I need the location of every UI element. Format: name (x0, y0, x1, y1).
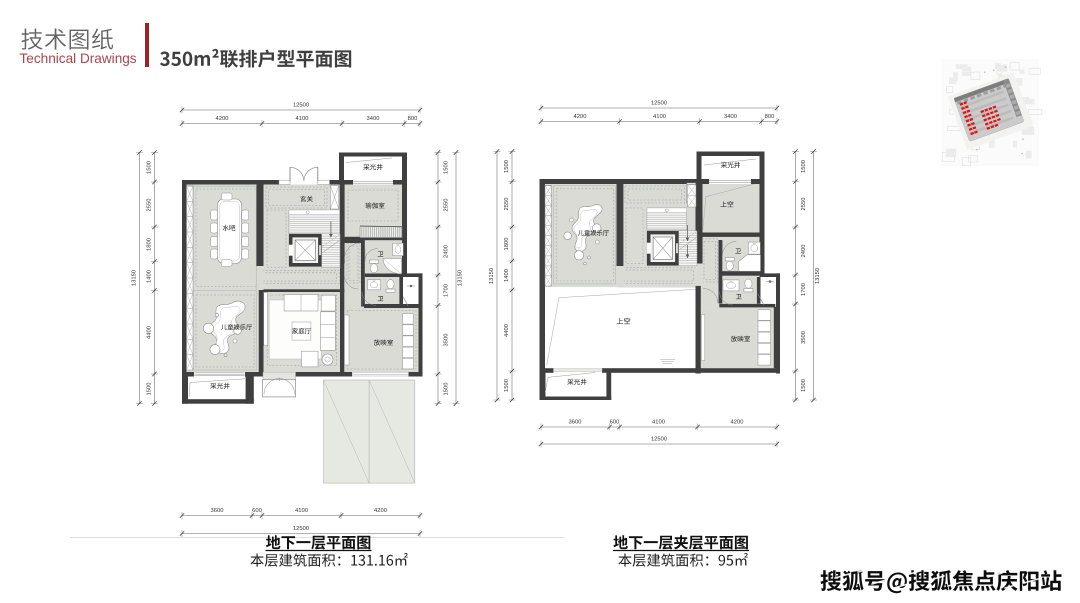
svg-text:12500: 12500 (651, 437, 667, 443)
svg-text:1400: 1400 (504, 269, 510, 282)
svg-text:13150: 13150 (489, 268, 495, 284)
svg-text:600: 600 (252, 508, 262, 514)
svg-text:12500: 12500 (293, 103, 309, 109)
svg-text:4100: 4100 (296, 116, 309, 122)
svg-text:2550: 2550 (504, 198, 510, 211)
svg-text:1800: 1800 (504, 238, 510, 251)
svg-text:1800: 1800 (147, 238, 153, 251)
svg-text:2550: 2550 (444, 199, 450, 212)
svg-text:12500: 12500 (651, 101, 667, 107)
svg-text:1700: 1700 (444, 284, 450, 297)
svg-text:4100: 4100 (652, 420, 665, 426)
svg-text:800: 800 (765, 114, 775, 120)
svg-text:1500: 1500 (444, 161, 450, 174)
svg-text:3400: 3400 (367, 116, 380, 122)
svg-text:1500: 1500 (147, 161, 153, 174)
svg-text:1700: 1700 (801, 283, 807, 296)
svg-text:4400: 4400 (504, 324, 510, 337)
svg-text:12500: 12500 (293, 526, 309, 532)
svg-text:2550: 2550 (801, 198, 807, 211)
svg-text:3600: 3600 (569, 420, 582, 426)
svg-text:4400: 4400 (147, 326, 153, 339)
svg-text:2400: 2400 (801, 245, 807, 258)
svg-text:4200: 4200 (374, 508, 387, 514)
svg-text:1500: 1500 (504, 160, 510, 173)
svg-text:3400: 3400 (724, 114, 737, 120)
svg-text:4200: 4200 (574, 114, 587, 120)
svg-text:1500: 1500 (147, 383, 153, 396)
svg-text:600: 600 (610, 420, 620, 426)
svg-text:1500: 1500 (444, 383, 450, 396)
svg-text:3600: 3600 (211, 508, 224, 514)
svg-text:4100: 4100 (295, 508, 308, 514)
svg-text:1500: 1500 (504, 379, 510, 392)
svg-text:4100: 4100 (653, 114, 666, 120)
svg-text:13150: 13150 (815, 268, 821, 284)
svg-text:3500: 3500 (444, 334, 450, 347)
svg-text:4200: 4200 (216, 116, 229, 122)
svg-text:2550: 2550 (147, 199, 153, 212)
svg-text:3500: 3500 (801, 331, 807, 344)
svg-text:4200: 4200 (731, 420, 744, 426)
svg-text:800: 800 (408, 116, 418, 122)
svg-text:13150: 13150 (458, 270, 464, 286)
svg-text:1500: 1500 (801, 379, 807, 392)
svg-text:13150: 13150 (132, 270, 138, 286)
svg-text:1400: 1400 (147, 270, 153, 283)
svg-text:2400: 2400 (444, 245, 450, 258)
svg-text:1500: 1500 (801, 160, 807, 173)
